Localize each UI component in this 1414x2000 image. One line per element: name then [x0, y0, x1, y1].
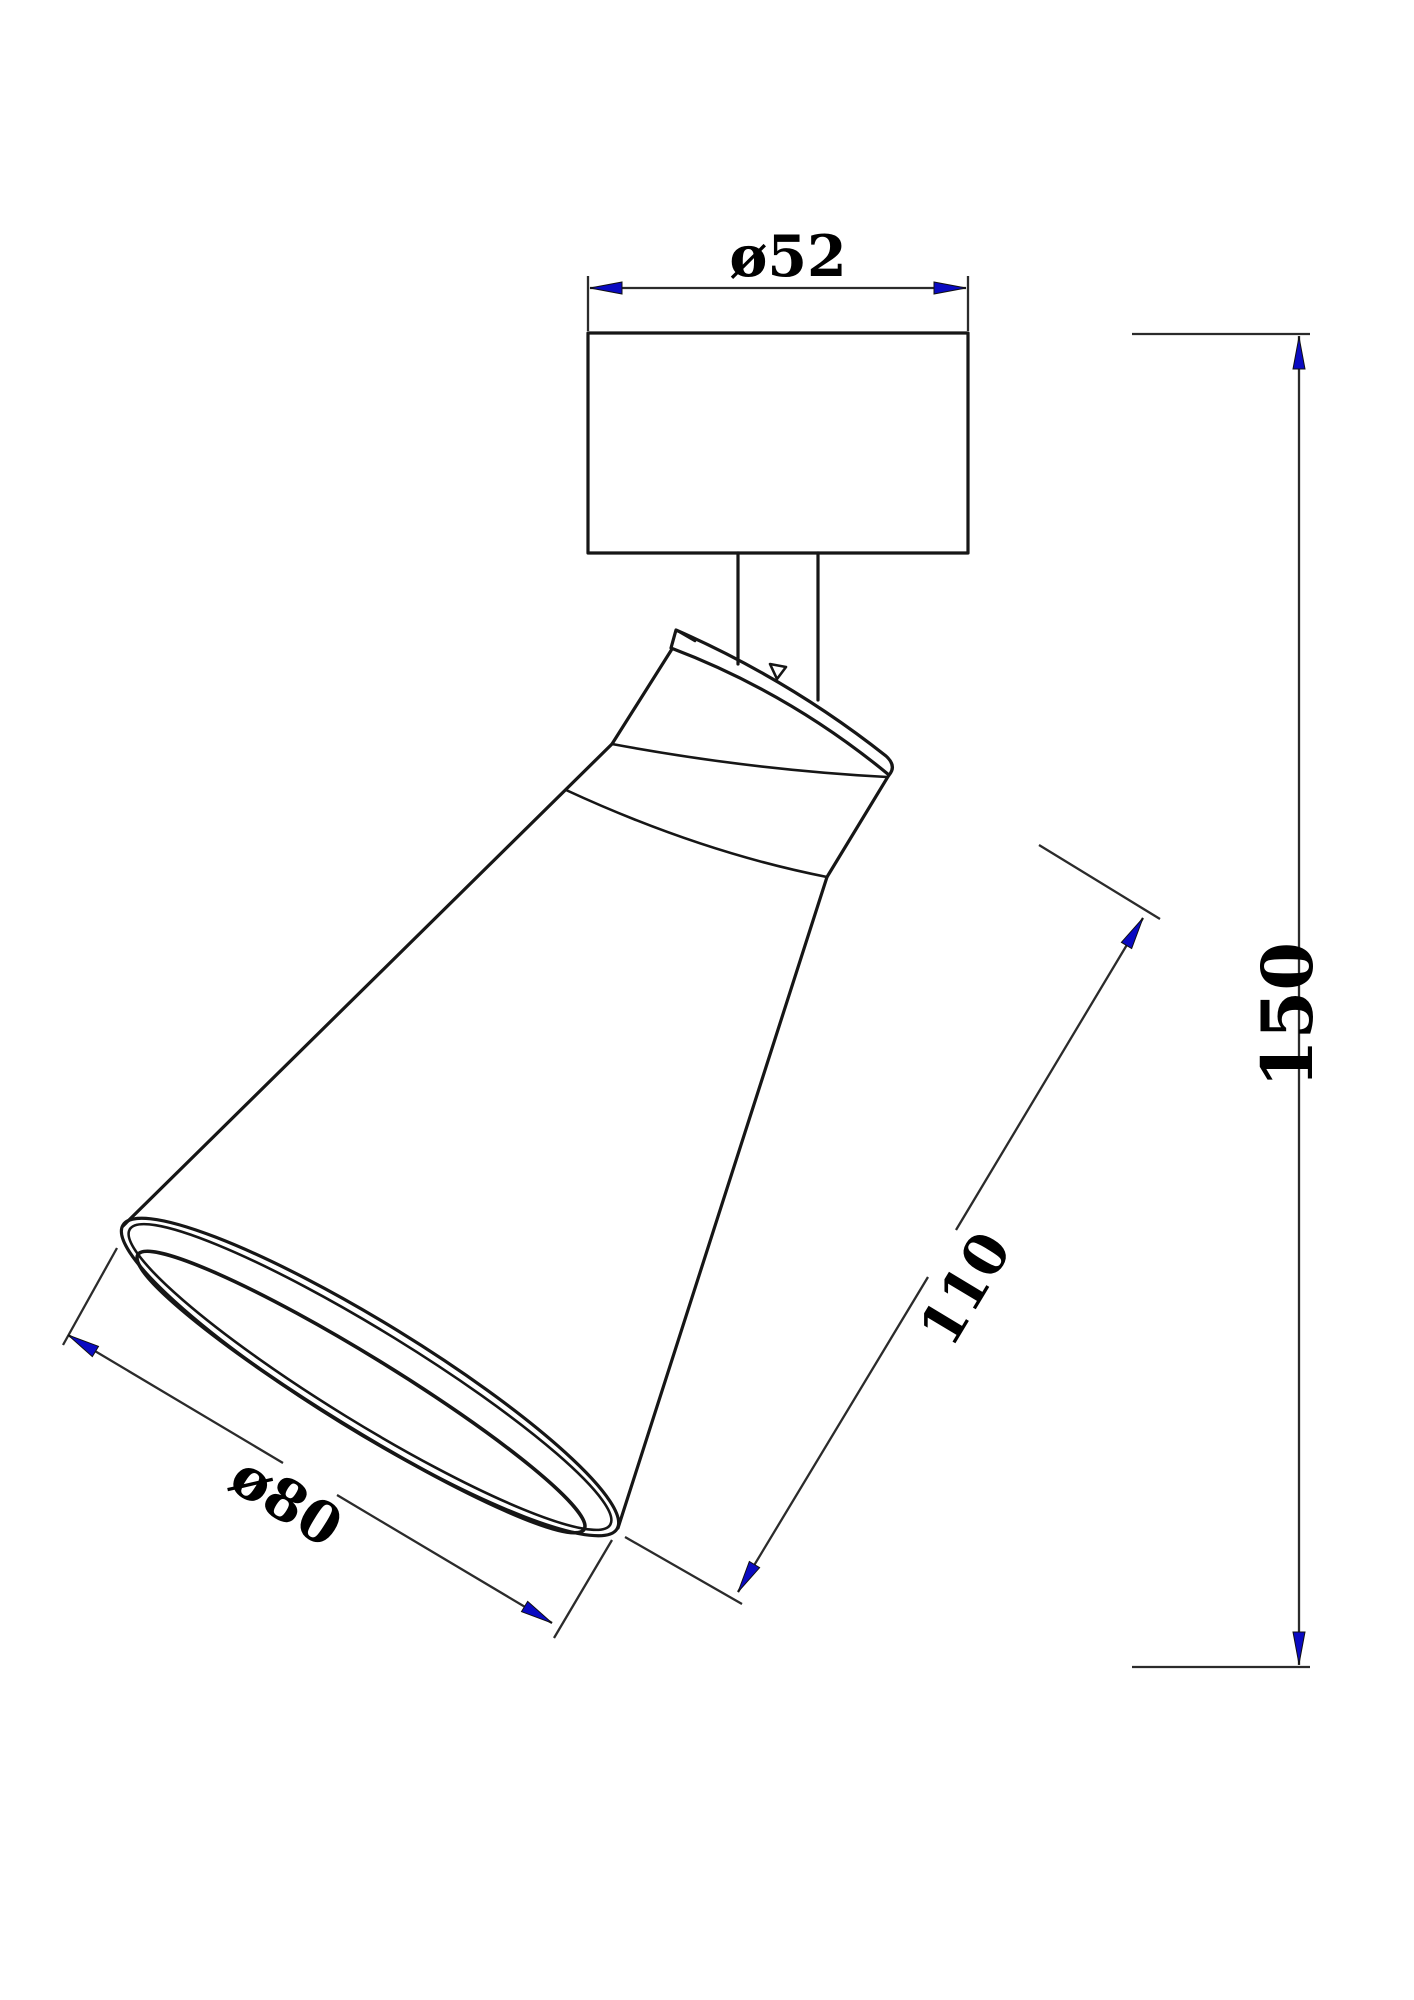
extension-line — [63, 1248, 117, 1345]
dimension-label-base-diameter: ø52 — [729, 223, 846, 290]
dimension-base-diameter: ø52 — [588, 223, 968, 331]
head-cap — [671, 630, 892, 775]
dimension-line — [738, 1277, 928, 1592]
shade-opening-rim-ellipse — [106, 1190, 635, 1564]
neck-left-edge — [612, 649, 672, 744]
collar-band-2 — [566, 790, 827, 877]
dimension-label-overall-height: 150 — [1246, 942, 1329, 1088]
arrowhead — [934, 282, 966, 294]
cone-right-edge — [618, 877, 827, 1528]
arrowhead — [590, 282, 622, 294]
dimension-label-head-length: 110 — [906, 1221, 1025, 1357]
arrowhead — [1293, 1632, 1305, 1664]
dimension-overall-height: 150 — [1132, 334, 1329, 1667]
cap-notch-detail — [770, 664, 786, 679]
cone-left-edge — [123, 744, 612, 1226]
arrowhead — [1121, 915, 1148, 949]
spotlight-dimension-drawing: ø52 150 110 ø80 — [0, 0, 1414, 2000]
extension-line — [1039, 845, 1160, 919]
neck-right-edge — [827, 775, 889, 877]
arrowhead — [733, 1561, 760, 1595]
arrowhead — [1293, 337, 1305, 369]
dimension-head-length: 110 — [625, 845, 1160, 1604]
collar-band-1 — [612, 744, 887, 777]
arrowhead — [521, 1601, 555, 1628]
technical-drawing-canvas: ø52 150 110 ø80 — [0, 0, 1414, 2000]
dimension-opening-diameter: ø80 — [63, 1248, 612, 1638]
mount-base — [588, 333, 968, 553]
dimension-label-opening-diameter: ø80 — [219, 1442, 354, 1561]
extension-line — [554, 1540, 612, 1638]
spotlight-part — [95, 333, 968, 1575]
dimension-line — [956, 918, 1143, 1230]
extension-line — [625, 1537, 742, 1604]
cap-tab-detail — [671, 630, 695, 648]
